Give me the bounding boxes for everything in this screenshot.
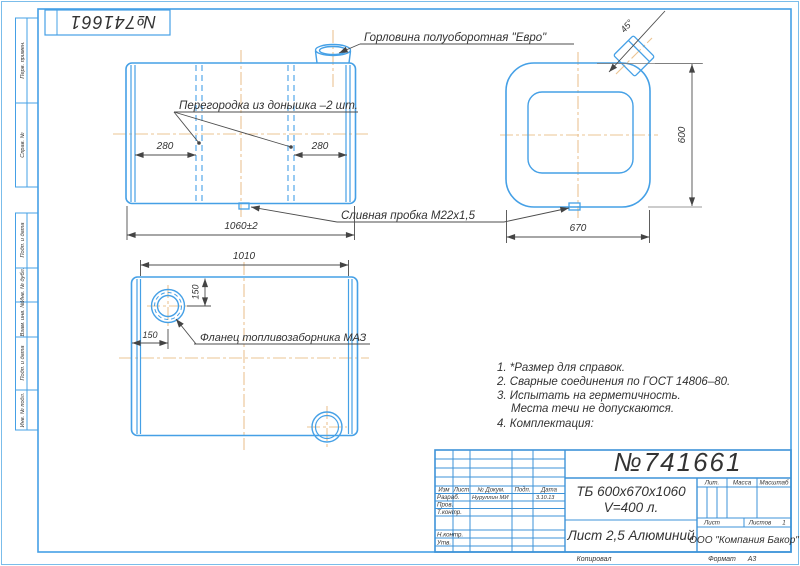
- row-tkontr: Т.контр.: [437, 509, 462, 516]
- dimension-texts: 1060±2 280 280 600 670 45° 1010 150 150: [142, 17, 688, 340]
- margin-label: Взам. инв. №: [20, 302, 26, 337]
- dim-side-height: 600: [677, 126, 688, 143]
- lit-label: Лит.: [704, 480, 720, 487]
- bottom-margin-labels: Копировал Формат А3: [577, 556, 757, 563]
- tank-inner-side: [528, 92, 633, 173]
- drawing-frame: Перв. примен. Справ. № Подп. и дата Инв.…: [2, 2, 799, 565]
- designer-date: 3.10.13: [536, 495, 555, 501]
- drawing-page: Перв. примен. Справ. № Подп. и дата Инв.…: [0, 0, 800, 566]
- format-value: А3: [747, 556, 757, 563]
- paper-edge: [2, 2, 799, 565]
- mass-label: Масса: [733, 480, 752, 487]
- rev-header-data: Дата: [540, 488, 557, 494]
- designer-name: Нуруллин МИ: [472, 495, 509, 501]
- margin-boxes: [16, 18, 39, 430]
- dim-front-width: 1060±2: [224, 221, 258, 232]
- dim-neck-angle: 45°: [618, 17, 635, 34]
- baffle-label: Перегородка из донышка –2 шт.: [179, 100, 358, 112]
- sheets-label: Листов: [748, 520, 772, 527]
- rev-table-rows: Разраб. Пров. Т.контр. Н.контр. Утв. Нур…: [436, 494, 555, 547]
- doc-name-line1: ТБ 600х670х1060: [576, 484, 686, 499]
- dim-baffle-left: 280: [156, 141, 174, 152]
- margin-label: Справ. №: [20, 132, 26, 157]
- dim-baffle-right: 280: [311, 141, 329, 152]
- rev-header-podp: Подп.: [515, 488, 531, 494]
- notes-block: 1. *Размер для справок. 2. Сварные соеди…: [496, 362, 730, 430]
- margin-labels: Перв. примен. Справ. № Подп. и дата Инв.…: [20, 41, 26, 427]
- dim-bottom-length: 1010: [233, 251, 256, 262]
- copied-label: Копировал: [577, 556, 612, 563]
- annotation-labels: Горловина полуоборотная "Евро" Перегород…: [179, 32, 547, 344]
- row-prov: Пров.: [437, 502, 453, 509]
- sheet-label: Лист: [703, 520, 720, 527]
- title-block: №741661 ТБ 600х670х1060 V=400 л. Лист 2,…: [435, 447, 799, 563]
- dim-side-width: 670: [570, 223, 587, 234]
- note-line: 3. Испытать на герметичность.: [497, 390, 681, 402]
- material-cell: Лист 2,5 Алюминий: [566, 528, 694, 543]
- margin-label: Инв. № подл.: [20, 393, 26, 428]
- dimension-lines: [127, 11, 703, 349]
- sheets-value: 1: [782, 520, 785, 527]
- format-label: Формат: [708, 556, 736, 563]
- side-view: [506, 35, 655, 210]
- flange-label: Фланец топливозаборника МАЗ: [200, 332, 366, 344]
- dim-flange-top: 150: [191, 284, 201, 299]
- drawing-canvas: Перв. примен. Справ. № Подп. и дата Инв.…: [0, 0, 800, 566]
- rev-header-list: Лист: [453, 488, 469, 494]
- doc-number: №741661: [614, 447, 743, 477]
- row-razrab: Разраб.: [437, 494, 459, 501]
- drain-label: Сливная пробка М22х1,5: [341, 210, 476, 222]
- dim-flange-side: 150: [142, 330, 157, 340]
- margin-label: Подп. и дата: [20, 345, 26, 380]
- rev-table-headers: Изм Лист № Докум. Подп. Дата: [438, 487, 557, 494]
- note-line: 4. Комплектация:: [497, 418, 594, 430]
- row-utv: Утв.: [436, 540, 451, 547]
- rev-header-izm: Изм: [438, 488, 449, 494]
- margin-label: Перв. примен.: [20, 41, 26, 78]
- rev-header-dokum: № Докум.: [477, 487, 504, 494]
- stamp-number: №741661: [70, 12, 157, 32]
- margin-label: Подп. и дата: [20, 222, 26, 257]
- leader-lines: [174, 44, 574, 344]
- corner-stamp: №741661: [45, 10, 170, 35]
- company-cell: ООО "Компания Бакор": [689, 535, 799, 546]
- neck-label: Горловина полуоборотная "Евро": [364, 32, 547, 44]
- row-nkontr: Н.контр.: [437, 532, 463, 539]
- margin-label: Инв. № дубл.: [20, 268, 26, 302]
- note-line: Места течи не допускаются.: [511, 403, 674, 415]
- note-line: 2. Сварные соединения по ГОСТ 14806–80.: [496, 376, 730, 388]
- doc-name-line2: V=400 л.: [604, 500, 659, 515]
- note-line: 1. *Размер для справок.: [497, 362, 625, 374]
- scale-label: Масштаб: [760, 480, 789, 487]
